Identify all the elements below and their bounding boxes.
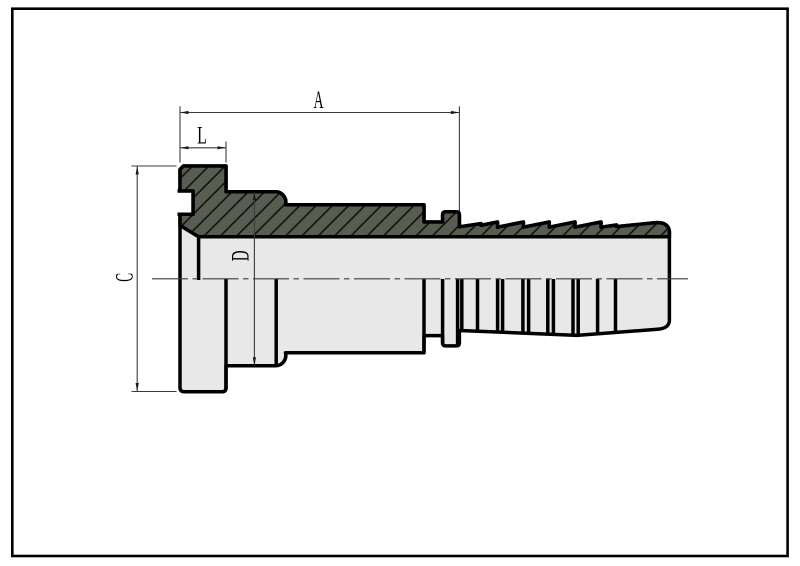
svg-text:A: A: [314, 87, 324, 114]
svg-text:C: C: [112, 273, 139, 282]
svg-text:D: D: [228, 250, 255, 261]
svg-text:L: L: [197, 123, 207, 150]
